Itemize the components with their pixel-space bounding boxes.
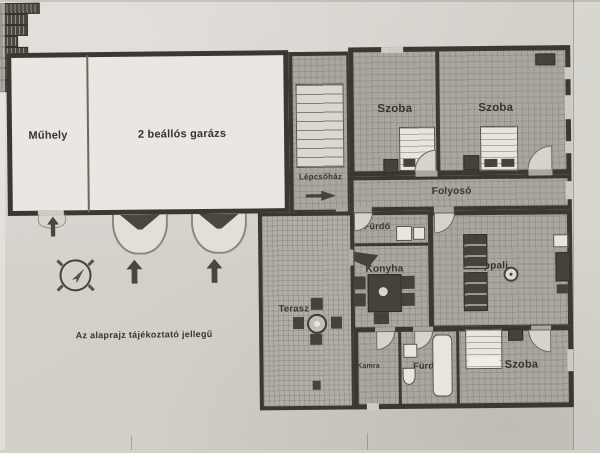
compass-tick <box>88 284 95 291</box>
scan-artifact-line <box>367 433 368 450</box>
lamp-icon <box>503 267 518 282</box>
pillow <box>484 159 497 167</box>
bed-icon <box>465 329 502 369</box>
chair <box>402 293 415 306</box>
nightstand <box>383 159 398 173</box>
chair <box>331 317 342 329</box>
scan-artifact-line <box>131 436 132 450</box>
garage-door-swing-icon <box>191 214 247 255</box>
window-top <box>381 47 403 53</box>
door-opening <box>415 171 437 177</box>
room-label-szoba-1: Szoba <box>377 103 412 115</box>
chair <box>374 312 389 324</box>
paper-edge-strip <box>574 0 600 450</box>
nightstand <box>463 155 479 170</box>
garage-door-swing-icon <box>112 214 168 255</box>
bed-icon <box>480 126 518 171</box>
pillow <box>403 159 415 167</box>
compass-rose-icon <box>59 259 91 291</box>
room-label-garazs: 2 beállós garázs <box>138 128 226 141</box>
wall-cabinet <box>535 53 555 65</box>
room-label-szoba-3: Szoba <box>505 359 539 371</box>
chair <box>311 298 323 310</box>
compass-tick <box>87 259 94 266</box>
room-label-folyoso: Folyosó <box>432 186 472 197</box>
room-label-muhely: Műhely <box>28 129 67 141</box>
scanned-paper: Műhely 2 beállós garázs Az alaprajz tájé… <box>0 0 600 450</box>
chair <box>310 334 322 345</box>
nightstand <box>508 329 523 341</box>
chair <box>293 317 304 329</box>
room-label-szoba-2: Szoba <box>478 102 513 114</box>
bath-fixture <box>413 227 425 240</box>
terrace-step <box>313 381 321 390</box>
table-center <box>314 321 320 327</box>
disclaimer-text: Az alaprajz tájékoztató jellegű <box>76 329 213 340</box>
up-arrow-icon <box>126 260 142 284</box>
window-right <box>564 67 571 79</box>
sofa-icon <box>463 234 487 269</box>
bathtub-icon <box>432 334 453 396</box>
sofa-icon <box>464 272 488 311</box>
garage-door-panel <box>120 214 160 229</box>
radiator <box>0 3 40 14</box>
room-label-terasz: Terasz <box>279 303 310 314</box>
window-right <box>565 95 572 119</box>
up-arrow-icon <box>206 259 222 283</box>
sink-icon <box>396 226 412 241</box>
garage-door-panel <box>199 214 239 229</box>
sink-icon <box>403 344 417 358</box>
table-setting <box>379 287 388 296</box>
side-table <box>553 234 568 247</box>
compass-tick <box>56 259 63 266</box>
floor-plan: Műhely 2 beállós garázs Az alaprajz tájé… <box>0 0 600 453</box>
bed-foot <box>468 357 499 366</box>
pillow <box>501 159 514 167</box>
corridor-end-opening <box>566 181 573 199</box>
side-table <box>557 284 568 293</box>
chair <box>402 276 415 289</box>
scan-top-edge <box>0 0 600 2</box>
compass-tick <box>57 284 64 291</box>
terrace-table-icon <box>307 314 327 334</box>
lamp-center <box>510 273 513 276</box>
stairs-icon <box>296 84 345 168</box>
compass-needle <box>68 267 86 288</box>
exit-door-opening <box>367 403 379 410</box>
tv-cabinet <box>555 252 570 281</box>
kitchen-table <box>368 274 402 312</box>
terasz-konyha-door-opening <box>348 249 353 265</box>
toilet-icon <box>403 368 416 385</box>
paper-left-edge <box>0 0 5 450</box>
window-right <box>565 141 572 153</box>
door-opening <box>528 169 552 175</box>
room-label-kamra: Kamra <box>357 363 380 370</box>
room-label-lepcsohaz: Lépcsőház <box>299 172 342 181</box>
